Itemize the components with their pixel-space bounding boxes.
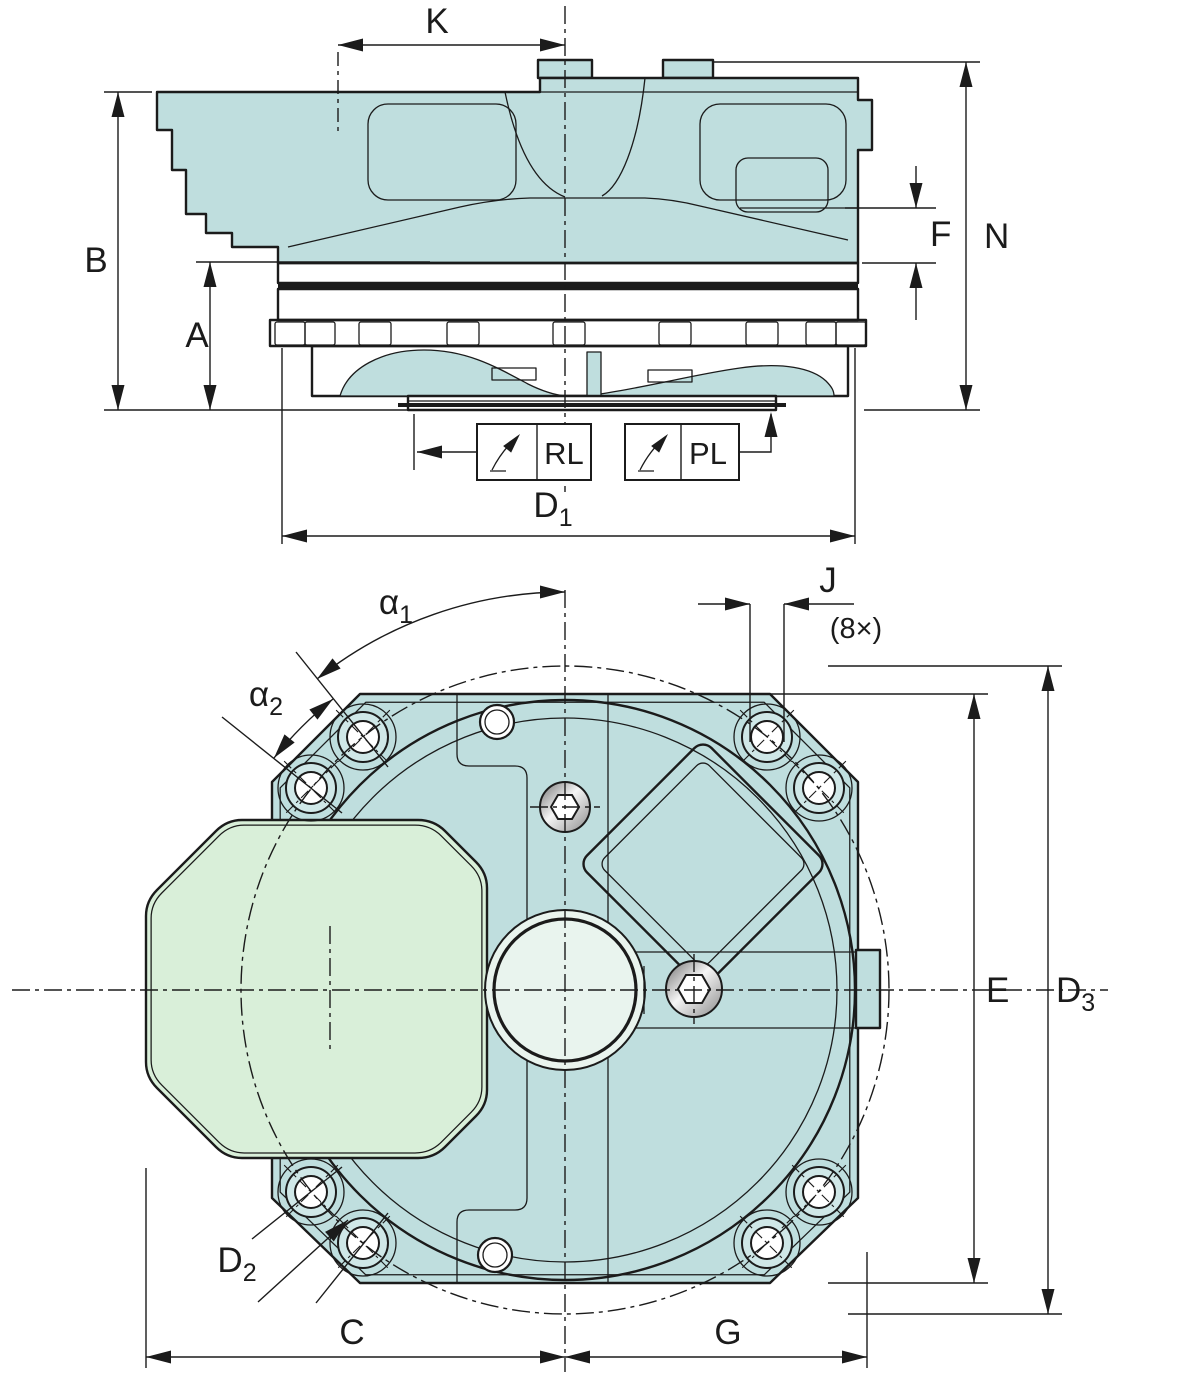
dim-label-k: K bbox=[425, 2, 448, 41]
plan-view: α1 α2 J (8×) E bbox=[12, 561, 1108, 1372]
dim-label-n: N bbox=[984, 217, 1009, 256]
dim-label-c: C bbox=[339, 1313, 364, 1352]
pl-callout: PL bbox=[625, 412, 778, 480]
cam-housing bbox=[312, 346, 848, 396]
technical-drawing: K B A F bbox=[0, 0, 1200, 1380]
dim-label-alpha2: α2 bbox=[249, 675, 283, 721]
rl-label: RL bbox=[544, 436, 584, 471]
top-port-right bbox=[663, 60, 713, 78]
dim-label-b: B bbox=[84, 241, 107, 280]
dim-label-g: G bbox=[714, 1313, 741, 1352]
dim-label-alpha1: α1 bbox=[379, 583, 413, 629]
base-plate bbox=[398, 396, 786, 410]
housing-body bbox=[157, 78, 872, 263]
dim-label-j: J bbox=[819, 561, 837, 600]
flange-bolts bbox=[275, 322, 866, 345]
dim-f: F bbox=[845, 166, 951, 320]
dim-label-d3: D3 bbox=[1056, 971, 1095, 1017]
dim-label-a: A bbox=[185, 316, 209, 355]
dim-label-d1: D1 bbox=[533, 486, 572, 532]
rl-callout: RL bbox=[414, 414, 591, 480]
dim-label-j-count: (8×) bbox=[830, 613, 882, 645]
dim-label-d2: D2 bbox=[217, 1241, 256, 1287]
side-view: K B A F bbox=[84, 2, 1009, 544]
pl-label: PL bbox=[689, 436, 727, 471]
dim-label-f: F bbox=[930, 215, 951, 254]
drawing-page: K B A F bbox=[0, 0, 1200, 1380]
side-tab bbox=[856, 950, 880, 1028]
green-clamp-face bbox=[146, 820, 487, 1158]
